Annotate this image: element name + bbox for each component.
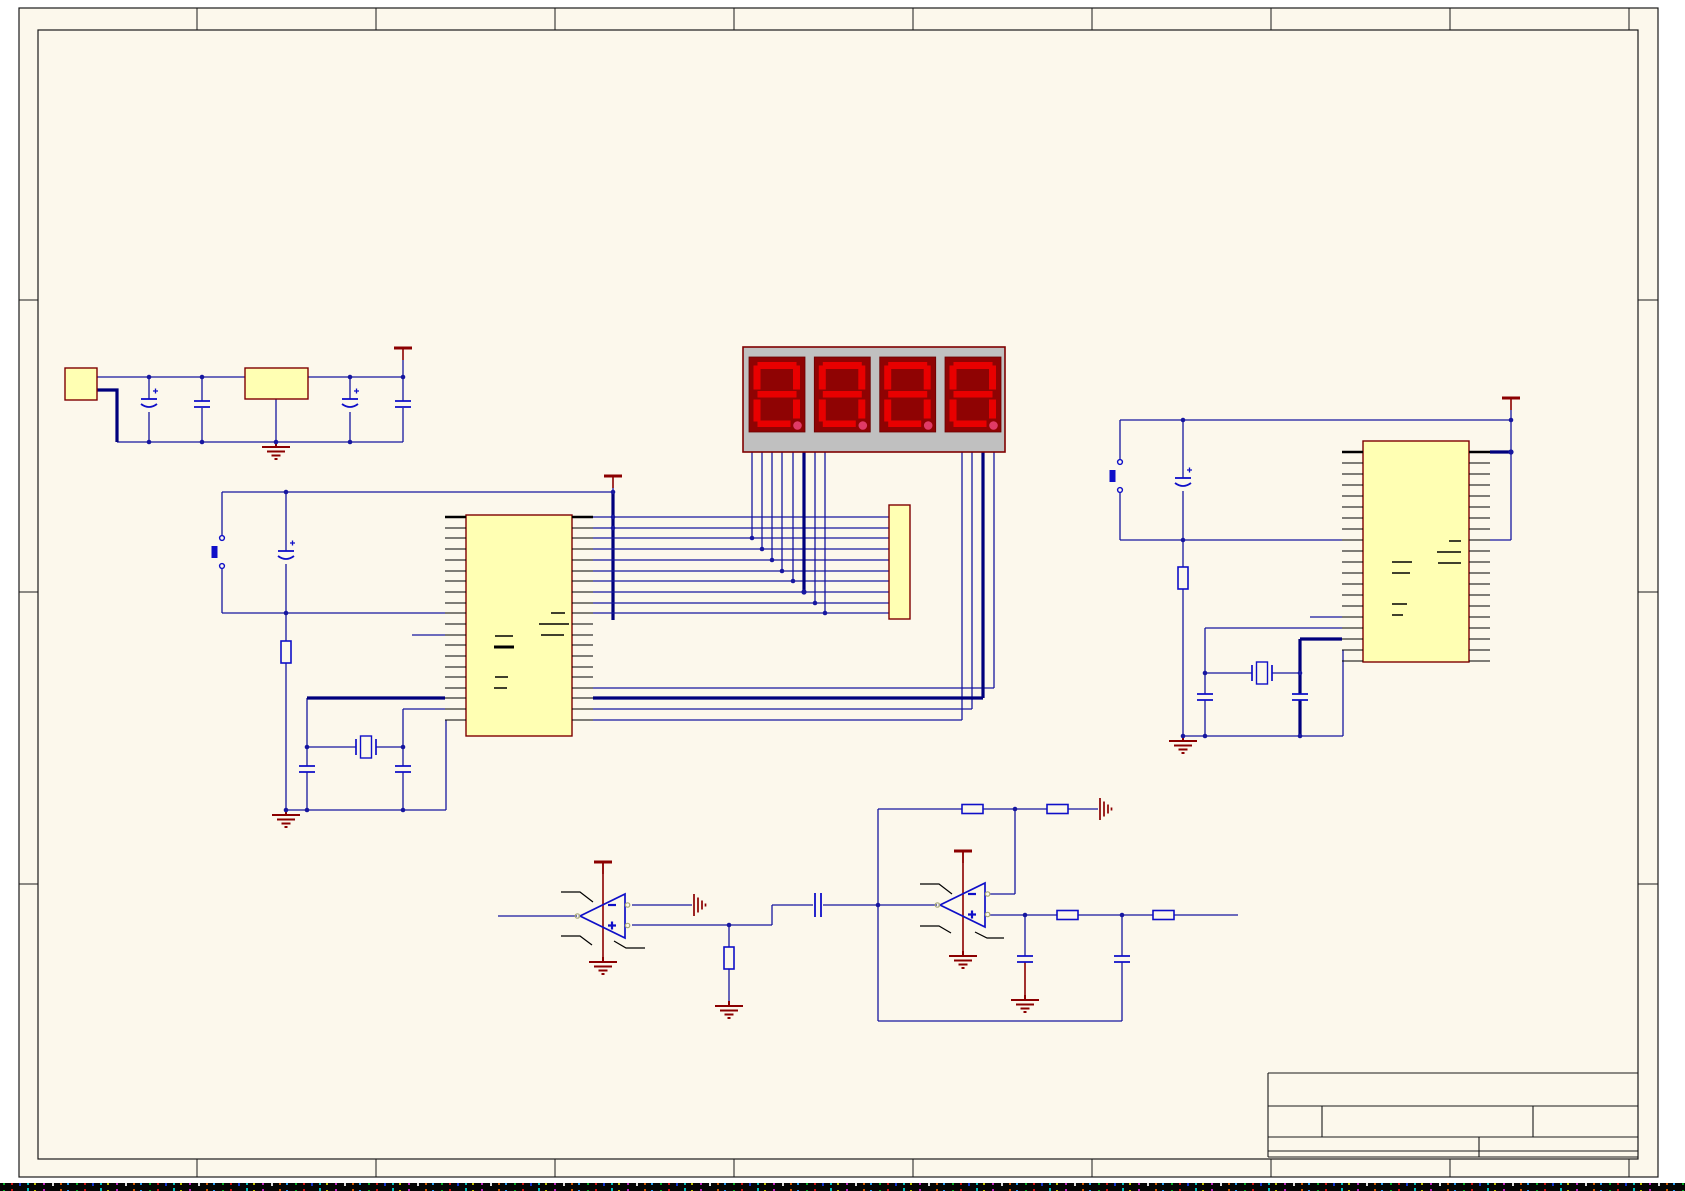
header-connector[interactable]	[889, 505, 910, 619]
voltage-regulator[interactable]	[245, 368, 308, 399]
digit-3	[880, 357, 936, 432]
mcu-left-body[interactable]	[466, 515, 572, 736]
schematic-sheet	[0, 0, 1685, 1191]
digit-2	[814, 357, 870, 432]
junction-dots	[727, 923, 732, 928]
power-connector[interactable]	[65, 368, 97, 400]
digit-4	[945, 357, 1001, 432]
bottom-noise-strip	[0, 1183, 1685, 1191]
digit-1	[749, 357, 805, 432]
seven-segment-display[interactable]	[743, 347, 1005, 452]
